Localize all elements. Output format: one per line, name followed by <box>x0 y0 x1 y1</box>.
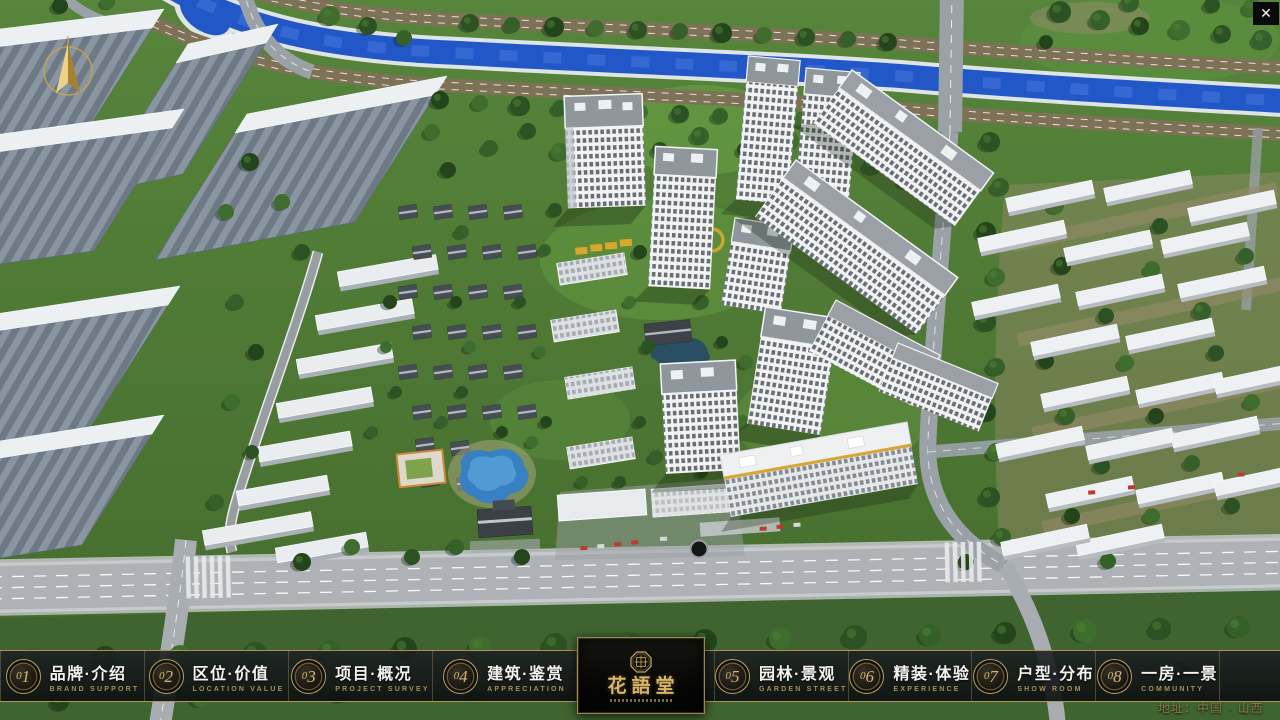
close-button[interactable]: ✕ <box>1253 2 1279 25</box>
nav-item-07[interactable]: 07户型·分布SHOW ROOM <box>971 651 1095 701</box>
logo-caption <box>610 699 672 702</box>
nav-item-label: 精装·体验 <box>893 660 970 684</box>
nav-item-01[interactable]: 01品牌·介绍BRAND SUPPORT <box>0 651 144 701</box>
nav-item-label: 品牌·介绍 <box>50 660 127 684</box>
nav-item-number-badge: 04 <box>443 659 478 694</box>
compass-icon <box>40 34 96 98</box>
nav-item-08[interactable]: 08一房·一景COMMUNITY <box>1095 651 1219 701</box>
nav-item-number-badge: 02 <box>149 659 184 694</box>
nav-item-number-badge: 05 <box>715 659 750 694</box>
nav-item-number-badge: 03 <box>291 659 326 694</box>
nav-item-03[interactable]: 03项目·概况PROJECT SURVEY <box>288 651 432 701</box>
nav-item-label: 项目·概况 <box>335 660 412 684</box>
nav-item-subtitle: GARDEN STREET <box>759 686 848 693</box>
nav-item-subtitle: PROJECT SURVEY <box>335 686 429 693</box>
nav-item-02[interactable]: 02区位·价值LOCATION VALUE <box>144 651 288 701</box>
nav-item-label: 建筑·鉴赏 <box>487 660 564 684</box>
nav-item-06[interactable]: 06精装·体验EXPERIENCE <box>848 651 972 701</box>
nav-item-04[interactable]: 04建筑·鉴赏APPRECIATION <box>432 651 576 701</box>
nav-item-label: 一房·一景 <box>1141 660 1218 684</box>
nav-segment-right: 05园林·景观GARDEN STREET06精装·体验EXPERIENCE07户… <box>705 651 1280 701</box>
masterplan-render <box>0 0 1280 720</box>
nav-spacer <box>1219 651 1280 701</box>
nav-item-05[interactable]: 05园林·景观GARDEN STREET <box>714 651 848 701</box>
nav-item-subtitle: LOCATION VALUE <box>193 686 285 693</box>
nav-item-subtitle: APPRECIATION <box>487 686 566 693</box>
nav-item-subtitle: SHOW ROOM <box>1017 686 1082 693</box>
nav-item-label: 园林·景观 <box>759 660 836 684</box>
nav-item-label: 户型·分布 <box>1017 660 1094 684</box>
nav-item-number-badge: 01 <box>6 659 41 694</box>
nav-item-subtitle: EXPERIENCE <box>893 686 960 693</box>
nav-item-number-badge: 07 <box>973 659 1008 694</box>
nav-item-subtitle: COMMUNITY <box>1141 686 1204 693</box>
project-address: 地址：中国 · 山西 <box>1158 700 1264 716</box>
nav-segment-left: 01品牌·介绍BRAND SUPPORT02区位·价值LOCATION VALU… <box>0 651 577 701</box>
nav-item-number-badge: 06 <box>849 659 884 694</box>
nav-item-label: 区位·价值 <box>193 660 270 684</box>
seal-icon <box>629 650 653 674</box>
logo-title: 花語堂 <box>602 677 679 696</box>
logo-panel: 花語堂 <box>577 637 705 714</box>
nav-item-number-badge: 08 <box>1097 659 1132 694</box>
nav-item-subtitle: BRAND SUPPORT <box>50 686 140 693</box>
